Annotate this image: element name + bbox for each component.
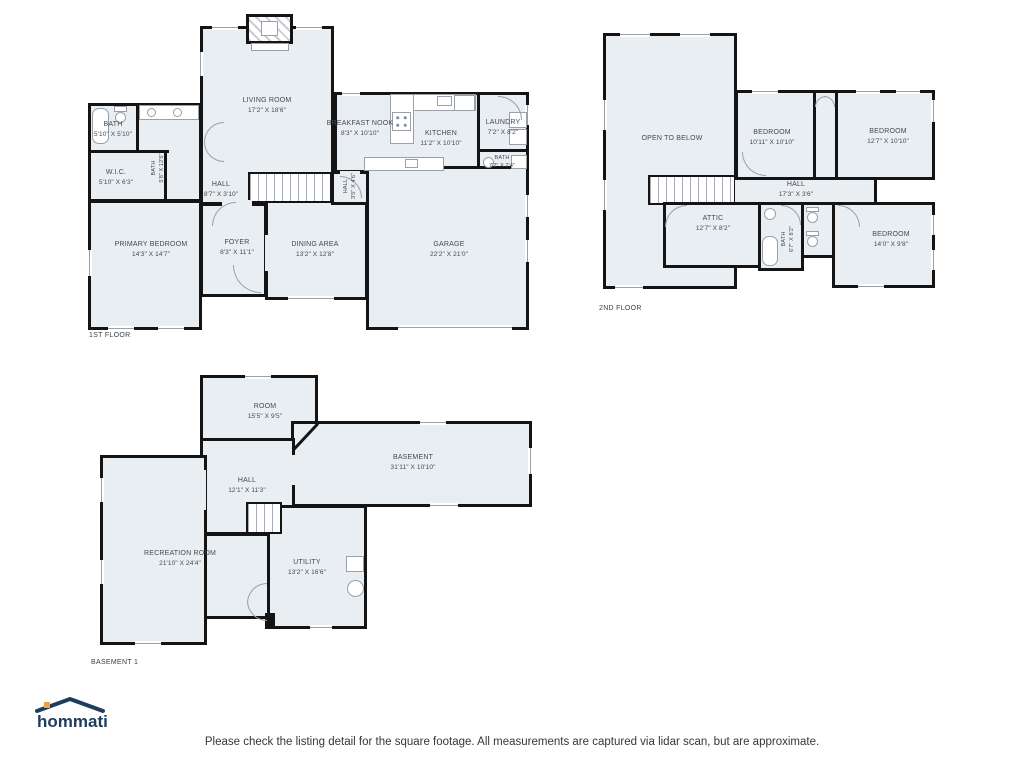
logo-text: hommati — [37, 712, 108, 731]
window — [420, 420, 446, 425]
window — [135, 641, 161, 646]
window — [108, 326, 134, 331]
room-hall2-fill — [735, 177, 877, 205]
sink-fixture — [437, 96, 452, 106]
stairs-second-floor — [648, 175, 736, 205]
window — [245, 374, 271, 379]
toilet-fixture — [807, 212, 818, 223]
window — [602, 100, 607, 130]
kitchen-island-fixture — [364, 157, 444, 171]
bathtub-fixture — [511, 155, 527, 169]
fridge-fixture — [454, 95, 475, 111]
stairs-basement — [246, 502, 282, 534]
wall-segment — [835, 90, 838, 178]
hommati-roof-icon: hommati — [30, 696, 112, 732]
room-basement-long-fill — [291, 421, 532, 507]
window — [602, 180, 607, 210]
window — [288, 296, 334, 301]
sink-fixture — [147, 108, 156, 117]
window — [342, 91, 360, 96]
disclaimer-text: Please check the listing detail for the … — [0, 736, 1024, 748]
window — [620, 32, 650, 37]
window — [856, 89, 880, 94]
door-opening — [252, 451, 272, 456]
window — [310, 625, 332, 630]
wall-segment — [164, 150, 167, 202]
window — [525, 240, 530, 262]
bathtub-fixture — [92, 108, 109, 144]
door-opening — [340, 171, 360, 175]
wall-segment — [88, 150, 169, 153]
bathtub-fixture — [762, 236, 778, 266]
window — [198, 52, 203, 76]
firebox-fixture — [261, 21, 278, 36]
door-opening — [201, 470, 206, 510]
sink-fixture — [483, 157, 494, 168]
window — [931, 100, 936, 122]
window — [752, 89, 778, 94]
sink-fixture — [173, 108, 182, 117]
window — [896, 89, 920, 94]
stairs-first-floor — [248, 172, 332, 203]
floor-caption-second: 2ND FLOOR — [599, 305, 642, 312]
water-heater-fixture — [347, 580, 364, 597]
door-opening — [735, 180, 740, 202]
room-recreation-fill — [100, 455, 207, 645]
toilet-fixture — [115, 112, 126, 123]
window — [158, 326, 184, 331]
door-opening — [291, 455, 297, 485]
window — [528, 448, 533, 474]
window — [296, 25, 322, 30]
window — [931, 215, 936, 235]
hommati-logo: hommati — [30, 696, 112, 737]
dryer-fixture — [509, 129, 527, 145]
window — [87, 250, 92, 276]
toilet-fixture — [807, 236, 818, 247]
window — [858, 284, 884, 289]
door-opening — [265, 235, 270, 271]
window — [615, 285, 643, 290]
wall-segment — [477, 149, 529, 152]
window — [680, 32, 710, 37]
floor-caption-basement: BASEMENT 1 — [91, 659, 138, 666]
hearth-fixture — [251, 43, 289, 51]
window — [212, 25, 238, 30]
room-dining-fill — [265, 197, 368, 300]
floorplan-page: LIVING ROOM17'2" X 18'6"BREAKFAST NOOK8'… — [0, 0, 1024, 768]
floor-caption-first: 1ST FLOOR — [89, 332, 130, 339]
window — [931, 250, 936, 270]
sink-fixture — [764, 208, 776, 220]
furnace-fixture — [346, 556, 364, 572]
sink-fixture — [405, 159, 418, 168]
stove-fixture — [392, 112, 411, 131]
room-primary-bedroom-fill — [88, 200, 202, 330]
window — [525, 195, 530, 217]
window — [99, 560, 104, 584]
garage-door — [398, 325, 512, 330]
window — [430, 503, 458, 508]
window — [99, 478, 104, 502]
room-garage-fill — [366, 166, 529, 330]
